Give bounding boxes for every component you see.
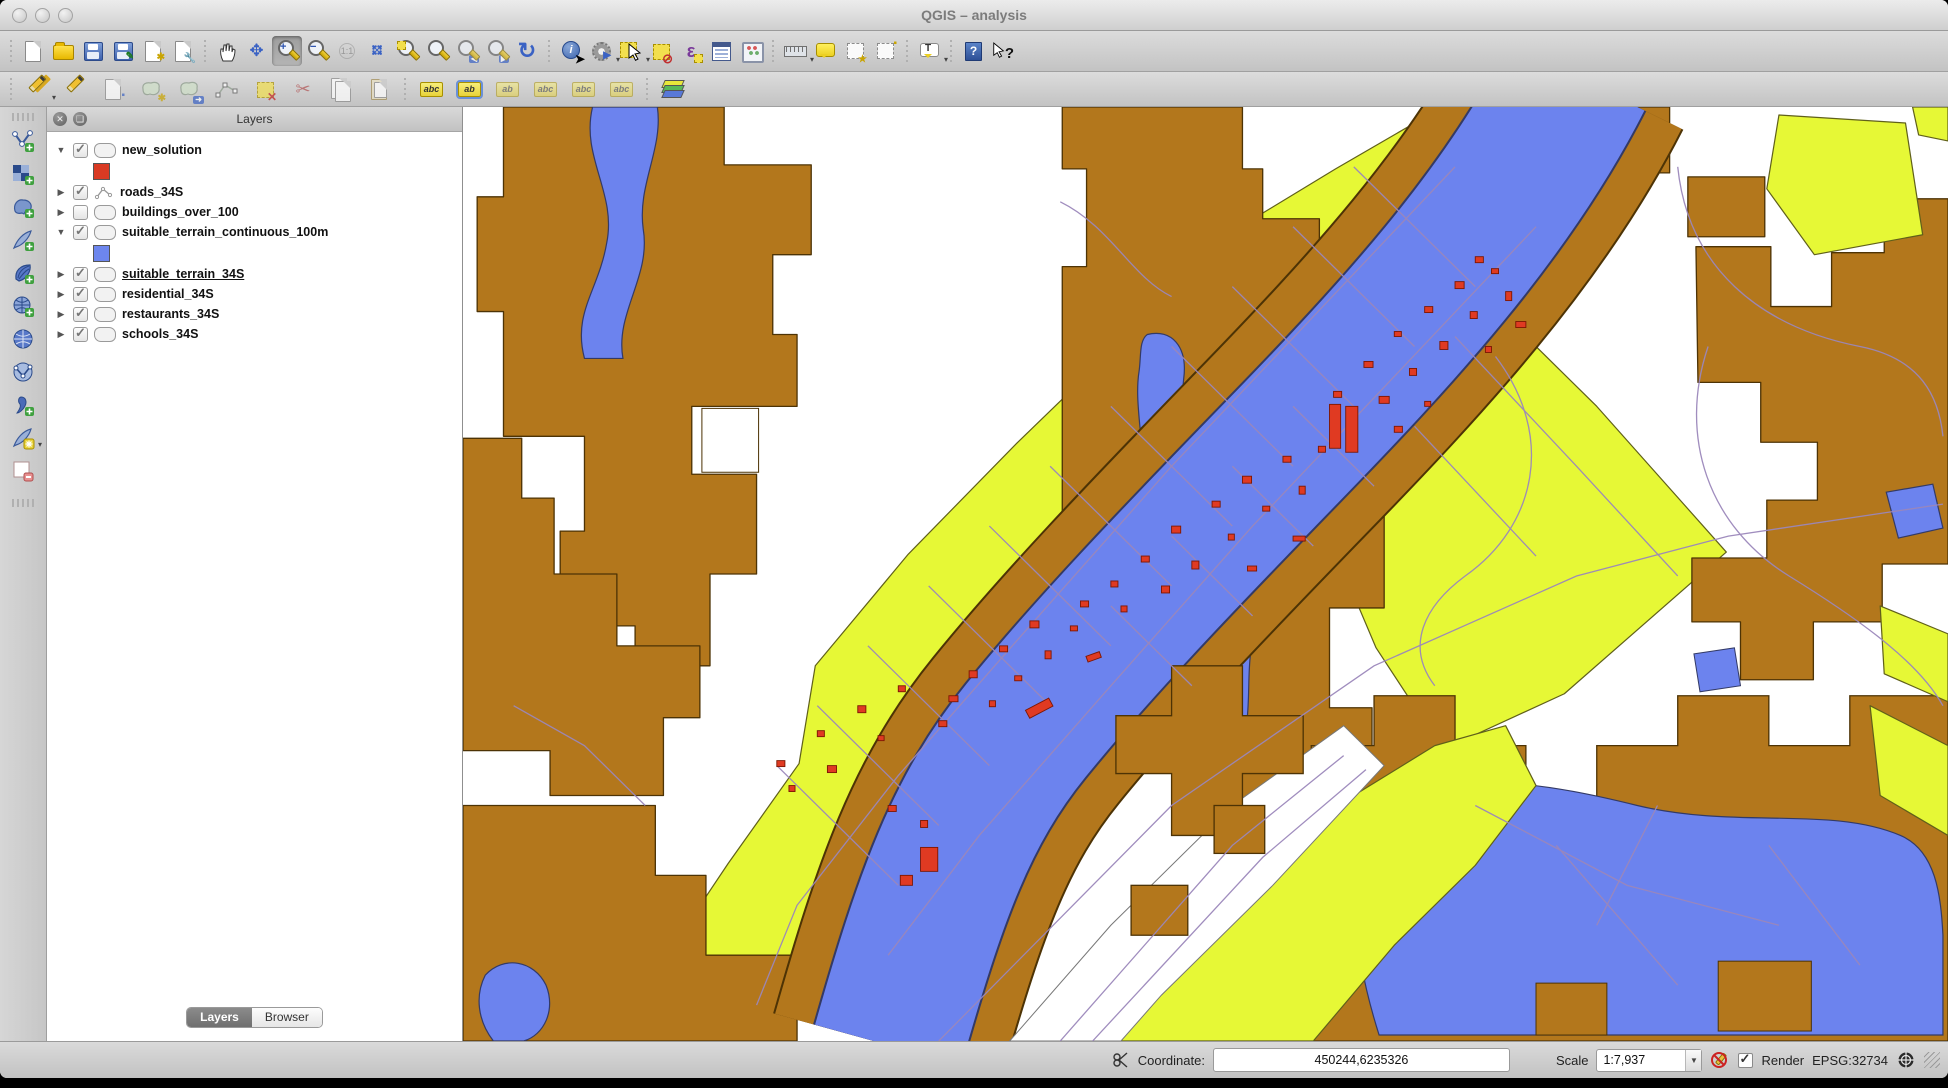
tab-layers[interactable]: Layers [187, 1008, 252, 1027]
expand-triangle-icon[interactable]: ▶ [55, 207, 67, 218]
layer-name[interactable]: roads_34S [120, 185, 183, 199]
abc-label-icon: abc [419, 77, 443, 101]
layer-visibility-checkbox[interactable] [73, 307, 88, 322]
save-icon [81, 39, 105, 63]
add-postgis-layer-button[interactable] [8, 194, 38, 220]
layer-name[interactable]: suitable_terrain_continuous_100m [122, 225, 328, 239]
open-attribute-table-button[interactable] [706, 36, 736, 66]
toolbar-grip[interactable] [7, 40, 15, 62]
polygon-layer-icon [94, 327, 116, 342]
save-project-as-button[interactable]: ✎ [108, 36, 138, 66]
whats-this-icon: ? [991, 39, 1015, 63]
zoom-to-selection-button[interactable] [392, 36, 422, 66]
expand-triangle-icon[interactable]: ▼ [55, 145, 67, 155]
scale-value: 1:7,937 [1597, 1053, 1685, 1067]
globe-icon [11, 327, 35, 351]
layer-row-new-solution[interactable]: ▼ new_solution [47, 140, 462, 160]
add-delimited-text-layer-button[interactable] [8, 392, 38, 418]
select-cursor-icon [619, 39, 643, 63]
add-wfs-layer-button[interactable] [8, 359, 38, 385]
toolbar-grip[interactable] [401, 78, 409, 100]
move-feature-button[interactable]: ➜ [174, 74, 204, 104]
layer-name[interactable]: schools_34S [122, 327, 198, 341]
save-edits-icon: ▪ [101, 77, 125, 101]
layer-visibility-checkbox[interactable] [73, 205, 88, 220]
raster-checker-icon [11, 162, 35, 186]
help-book-icon: ? [961, 39, 985, 63]
line-layer-icon [94, 186, 114, 199]
abc-label-icon: abc [533, 77, 557, 101]
coordinate-label: Coordinate: [1138, 1053, 1205, 1068]
cursor-arrow-icon [627, 43, 643, 61]
extent-capture-icon[interactable] [1110, 1050, 1130, 1070]
legend-swatch-blue [93, 245, 110, 262]
move-label-button[interactable]: abc [568, 74, 598, 104]
new-spatialite-layer-button[interactable]: ▾ [8, 425, 38, 451]
new-composer-button[interactable]: ✱ [138, 36, 168, 66]
layer-row-buildings[interactable]: ▶ buildings_over_100 [47, 202, 462, 222]
editing-toolbar: ▾ ▪ ✱ ➜ ✕ ✂ abc ab ab abc abc abc [0, 72, 1948, 107]
layer-legend-row [47, 160, 462, 182]
zoom-out-button[interactable]: − [302, 36, 332, 66]
render-checkbox[interactable] [1738, 1053, 1753, 1068]
pencils-icon [25, 77, 49, 101]
remove-layer-group-button[interactable] [8, 458, 38, 484]
abacus-icon [739, 39, 763, 63]
processing-toolbox-button[interactable] [658, 74, 688, 104]
new-bookmark-button[interactable]: ★ [840, 36, 870, 66]
node-tool-button[interactable] [212, 74, 242, 104]
measure-button[interactable]: ▾ [780, 36, 810, 66]
scissors-icon: ✂ [291, 77, 315, 101]
new-composer-icon: ✱ [141, 39, 165, 63]
new-project-icon [21, 39, 45, 63]
add-spatialite-layer-button[interactable] [8, 227, 38, 253]
map-canvas[interactable] [463, 107, 1948, 1041]
globe-nodes-icon [11, 360, 35, 384]
save-as-icon: ✎ [111, 39, 135, 63]
resize-grip[interactable] [1924, 1052, 1940, 1068]
panel-tabs: Layers Browser [47, 1007, 462, 1041]
toolbar-grip[interactable] [769, 40, 777, 62]
layer-row-roads[interactable]: ▶ roads_34S [47, 182, 462, 202]
map-tips-button[interactable] [810, 36, 840, 66]
cut-features-button[interactable]: ✂ [288, 74, 318, 104]
render-label: Render [1761, 1053, 1804, 1068]
scale-combo[interactable]: 1:7,937 ▼ [1596, 1049, 1702, 1072]
feather-icon [11, 228, 35, 252]
toggle-editing-button[interactable] [60, 74, 90, 104]
expand-triangle-icon[interactable]: ▶ [55, 269, 67, 280]
show-bookmarks-button[interactable]: ▪ [870, 36, 900, 66]
expand-triangle-icon[interactable]: ▶ [55, 309, 67, 320]
layer-visibility-checkbox[interactable] [73, 287, 88, 302]
layer-name[interactable]: new_solution [122, 143, 202, 157]
field-calculator-button[interactable] [736, 36, 766, 66]
map-rendering [463, 107, 1948, 1041]
toolbar-grip[interactable] [7, 78, 15, 100]
zoom-in-button[interactable]: + [272, 36, 302, 66]
globe-icon [11, 294, 35, 318]
zoom-full-extent-button[interactable]: ✥ [362, 36, 392, 66]
help-button[interactable]: ? [958, 36, 988, 66]
layer-row-residential[interactable]: ▶ residential_34S [47, 284, 462, 304]
layer-visibility-checkbox[interactable] [73, 327, 88, 342]
main-toolbar: ✎ ✱ 🔧 ✥ + − 1:1 ✥ ◀ ▶ ↻ i➤ ▶▾ ▾ ⊘ ε ▾ ★ … [0, 31, 1948, 72]
zoom-native-button[interactable]: 1:1 [332, 36, 362, 66]
refresh-map-button[interactable]: ↻ [512, 36, 542, 66]
pan-map-button[interactable] [212, 36, 242, 66]
expand-triangle-icon[interactable]: ▶ [55, 289, 67, 300]
layer-visibility-checkbox[interactable] [73, 225, 88, 240]
identify-icon: i➤ [559, 39, 583, 63]
zoom-to-layer-button[interactable] [422, 36, 452, 66]
layer-tree: ▼ new_solution ▶ roads_34S [47, 132, 462, 1007]
ab-label-icon: ab [457, 77, 481, 101]
deselect-features-button[interactable]: ⊘ [646, 36, 676, 66]
add-feature-button[interactable]: ✱ [136, 74, 166, 104]
new-bookmark-icon: ★ [843, 39, 867, 63]
select-by-expression-button[interactable]: ε [676, 36, 706, 66]
map-tips-bubble-icon [813, 39, 837, 63]
polygon-layer-icon [94, 143, 116, 158]
zoom-out-icon: − [305, 39, 329, 63]
toolbar-grip[interactable] [643, 78, 651, 100]
expand-triangle-icon[interactable]: ▶ [55, 329, 67, 340]
layer-row-schools[interactable]: ▶ schools_34S [47, 324, 462, 344]
zoom-selection-icon [395, 39, 419, 63]
run-feature-action-button[interactable]: ▶▾ [586, 36, 616, 66]
select-features-button[interactable]: ▾ [616, 36, 646, 66]
composer-manager-icon: 🔧 [171, 39, 195, 63]
text-annotation-button[interactable]: T▾ [914, 36, 944, 66]
zoom-next-icon: ▶ [485, 39, 509, 63]
add-oracle-layer-button[interactable] [8, 293, 38, 319]
combo-arrow-icon[interactable]: ▼ [1685, 1050, 1701, 1071]
whats-this-button[interactable]: ? [988, 36, 1018, 66]
qgis-window: QGIS – analysis ✎ ✱ 🔧 ✥ + − 1:1 ✥ ◀ ▶ ↻ … [0, 0, 1948, 1078]
text-annotation-icon: T [917, 39, 941, 63]
layer-labeling-button[interactable]: abc [416, 74, 446, 104]
toolbar-grip[interactable] [903, 40, 911, 62]
show-bookmarks-icon: ▪ [873, 39, 897, 63]
layer-visibility-checkbox[interactable] [73, 185, 88, 200]
current-edits-button[interactable]: ▾ [22, 74, 52, 104]
deselect-icon: ⊘ [649, 39, 673, 63]
pin-label-icon: ab [495, 77, 519, 101]
ruler-icon [783, 39, 807, 63]
elephant-icon [11, 195, 35, 219]
toolbar-grip[interactable] [545, 40, 553, 62]
paste-features-button[interactable] [364, 74, 394, 104]
expand-triangle-icon[interactable]: ▶ [55, 187, 67, 198]
expand-triangle-icon[interactable]: ▼ [55, 227, 67, 237]
polygon-layer-icon [94, 205, 116, 220]
toolbar-grip[interactable] [201, 40, 209, 62]
zoom-layer-icon [425, 39, 449, 63]
refresh-icon: ↻ [515, 39, 539, 63]
polygon-layer-icon [94, 287, 116, 302]
add-wms-layer-button[interactable] [8, 326, 38, 352]
toolbar-grip[interactable] [12, 113, 34, 121]
add-raster-layer-button[interactable] [8, 161, 38, 187]
action-gear-icon: ▶ [589, 39, 613, 63]
node-tool-icon [215, 77, 239, 101]
coordinate-input[interactable]: 450244,6235326 [1213, 1048, 1510, 1072]
zoom-native-icon: 1:1 [335, 39, 359, 63]
window-title: QGIS – analysis [0, 7, 1948, 23]
stop-render-icon[interactable] [1710, 1050, 1730, 1070]
paste-icon [367, 77, 391, 101]
pencil-icon [63, 77, 87, 101]
epsilon-icon: ε [679, 39, 703, 63]
layers-panel-title: Layers [47, 112, 462, 126]
layer-row-suitable-terrain[interactable]: ▶ suitable_terrain_34S [47, 264, 462, 284]
delete-selected-icon: ✕ [253, 77, 277, 101]
processing-layers-icon [661, 77, 685, 101]
layer-name[interactable]: buildings_over_100 [122, 205, 239, 219]
add-mssql-layer-button[interactable] [8, 260, 38, 286]
delete-selected-button[interactable]: ✕ [250, 74, 280, 104]
save-layer-edits-button[interactable]: ▪ [98, 74, 128, 104]
open-project-icon [51, 39, 75, 63]
layer-row-restaurants[interactable]: ▶ restaurants_34S [47, 304, 462, 324]
polygon-layer-icon [94, 267, 116, 282]
status-bar: Coordinate: 450244,6235326 Scale 1:7,937… [0, 1041, 1948, 1078]
shell-icon [11, 261, 35, 285]
expand-arrows-icon: ✥ [365, 39, 389, 63]
highlight-labels-button[interactable]: abc [530, 74, 560, 104]
layer-name[interactable]: suitable_terrain_34S [122, 267, 244, 281]
layer-name[interactable]: restaurants_34S [122, 307, 219, 321]
identify-button[interactable]: i➤ [556, 36, 586, 66]
pin-labels-button[interactable]: ab [492, 74, 522, 104]
attribute-table-icon [709, 39, 733, 63]
layer-labeling-options-button[interactable]: ab [454, 74, 484, 104]
save-project-button[interactable] [78, 36, 108, 66]
manage-layers-toolbar: ▾ [0, 107, 47, 1041]
zoom-last-button[interactable]: ◀ [452, 36, 482, 66]
layer-visibility-checkbox[interactable] [73, 143, 88, 158]
vector-nodes-icon [11, 129, 35, 153]
pan-hand-icon [215, 39, 239, 63]
legend-swatch-red [93, 163, 110, 180]
pan-to-selection-button[interactable]: ✥ [242, 36, 272, 66]
add-vector-layer-button[interactable] [8, 128, 38, 154]
toolbar-grip[interactable] [947, 40, 955, 62]
move-arrows-icon: ✥ [245, 39, 269, 63]
crs-status-icon[interactable] [1896, 1050, 1916, 1070]
abc-label-icon: abc [609, 77, 633, 101]
layer-name[interactable]: residential_34S [122, 287, 214, 301]
square-minus-icon [11, 459, 35, 483]
scale-label: Scale [1556, 1053, 1589, 1068]
layer-row-suitable-terrain-continuous[interactable]: ▼ suitable_terrain_continuous_100m [47, 222, 462, 242]
comma-icon [11, 393, 35, 417]
zoom-last-icon: ◀ [455, 39, 479, 63]
zoom-next-button[interactable]: ▶ [482, 36, 512, 66]
composer-manager-button[interactable]: 🔧 [168, 36, 198, 66]
toolbar-grip[interactable] [12, 499, 34, 507]
abc-label-icon: abc [571, 77, 595, 101]
new-project-button[interactable] [18, 36, 48, 66]
layer-visibility-checkbox[interactable] [73, 267, 88, 282]
title-bar: QGIS – analysis [0, 0, 1948, 31]
layers-panel-header: Layers ✕ ❏ [47, 107, 462, 132]
open-project-button[interactable] [48, 36, 78, 66]
polygon-layer-icon [94, 307, 116, 322]
tab-browser[interactable]: Browser [252, 1008, 322, 1027]
rotate-label-button[interactable]: abc [606, 74, 636, 104]
crs-label: EPSG:32734 [1812, 1053, 1888, 1068]
feather-icon [11, 426, 35, 450]
copy-features-button[interactable] [326, 74, 356, 104]
layers-panel: Layers ✕ ❏ ▼ new_solution ▶ [47, 107, 463, 1041]
polygon-layer-icon [94, 225, 116, 240]
layer-legend-row [47, 242, 462, 264]
zoom-in-icon: + [275, 39, 299, 63]
copy-icon [329, 77, 353, 101]
